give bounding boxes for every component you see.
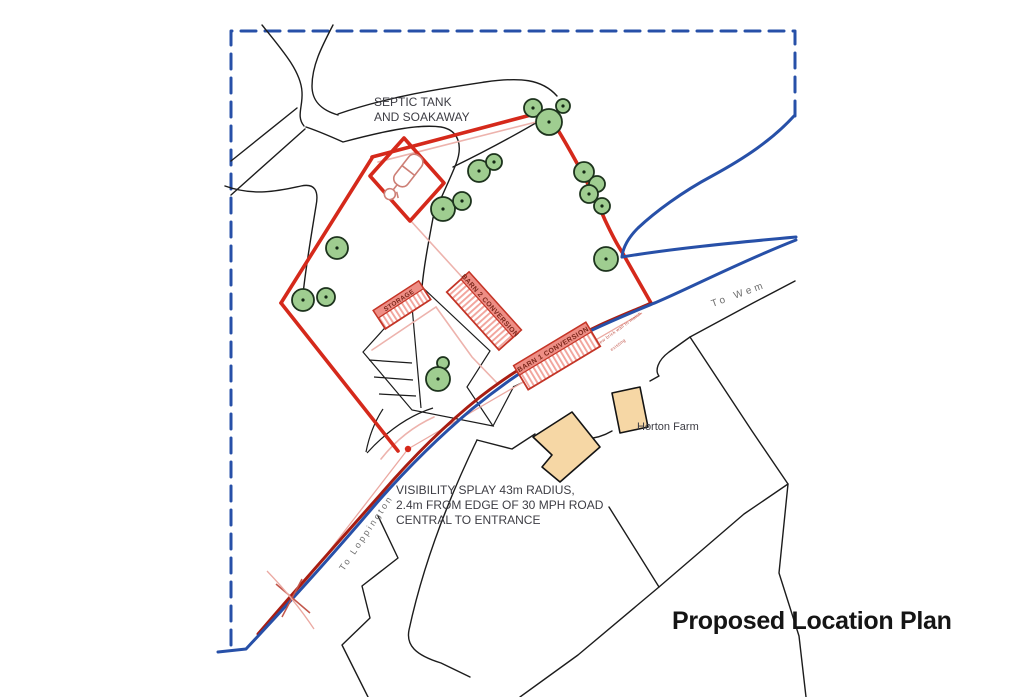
lane-line: [231, 129, 305, 195]
stream-line: [622, 116, 794, 257]
site-boundary-road-edge: [258, 303, 651, 634]
page-title: Proposed Location Plan: [672, 607, 952, 635]
courtyard-division: [369, 360, 412, 363]
field-boundary-line: [477, 434, 535, 449]
lane-line: [262, 25, 304, 126]
road-to-wem-edge: [622, 237, 796, 257]
field-boundary-line: [520, 337, 788, 697]
track-line: [422, 218, 433, 287]
barn1-building: BARN 1 CONVERSION: [514, 322, 600, 389]
wall-note-label-line2: existing: [609, 338, 626, 353]
visibility-splay-label-line3: CENTRAL TO ENTRANCE: [396, 513, 540, 527]
visibility-splay-label-line1: VISIBILITY SPLAY 43m RADIUS,: [396, 483, 575, 497]
location-plan: STORAGE BARN 2 CONVERSION BARN 1 CONVERS…: [0, 0, 1024, 697]
horton-farm-label: Horton Farm: [637, 421, 699, 433]
field-boundary-line: [779, 484, 806, 697]
barn2-building: BARN 2 CONVERSION: [445, 271, 522, 352]
storage-building: STORAGE: [373, 281, 430, 329]
field-boundary-line: [225, 185, 317, 295]
field-boundary-line: [609, 507, 659, 587]
courtyard-division: [374, 377, 413, 380]
farm-building: [533, 412, 600, 482]
drain-line: [410, 220, 462, 277]
lane-line: [312, 25, 338, 115]
location-plan-canvas: STORAGE BARN 2 CONVERSION BARN 1 CONVERS…: [0, 0, 1024, 697]
to-wem-label: To Wem: [710, 280, 768, 310]
septic-label-line1: SEPTIC TANK: [374, 95, 452, 109]
septic-label-line2: AND SOAKAWAY: [374, 110, 470, 124]
visibility-splay-label-line2: 2.4m FROM EDGE OF 30 MPH ROAD: [396, 498, 604, 512]
courtyard-division: [379, 394, 416, 396]
field-boundary-line: [408, 440, 477, 677]
field-boundary-line: [342, 516, 398, 697]
site-boundary: [281, 158, 372, 303]
entrance-point: [405, 446, 411, 452]
lane-line: [231, 108, 297, 161]
